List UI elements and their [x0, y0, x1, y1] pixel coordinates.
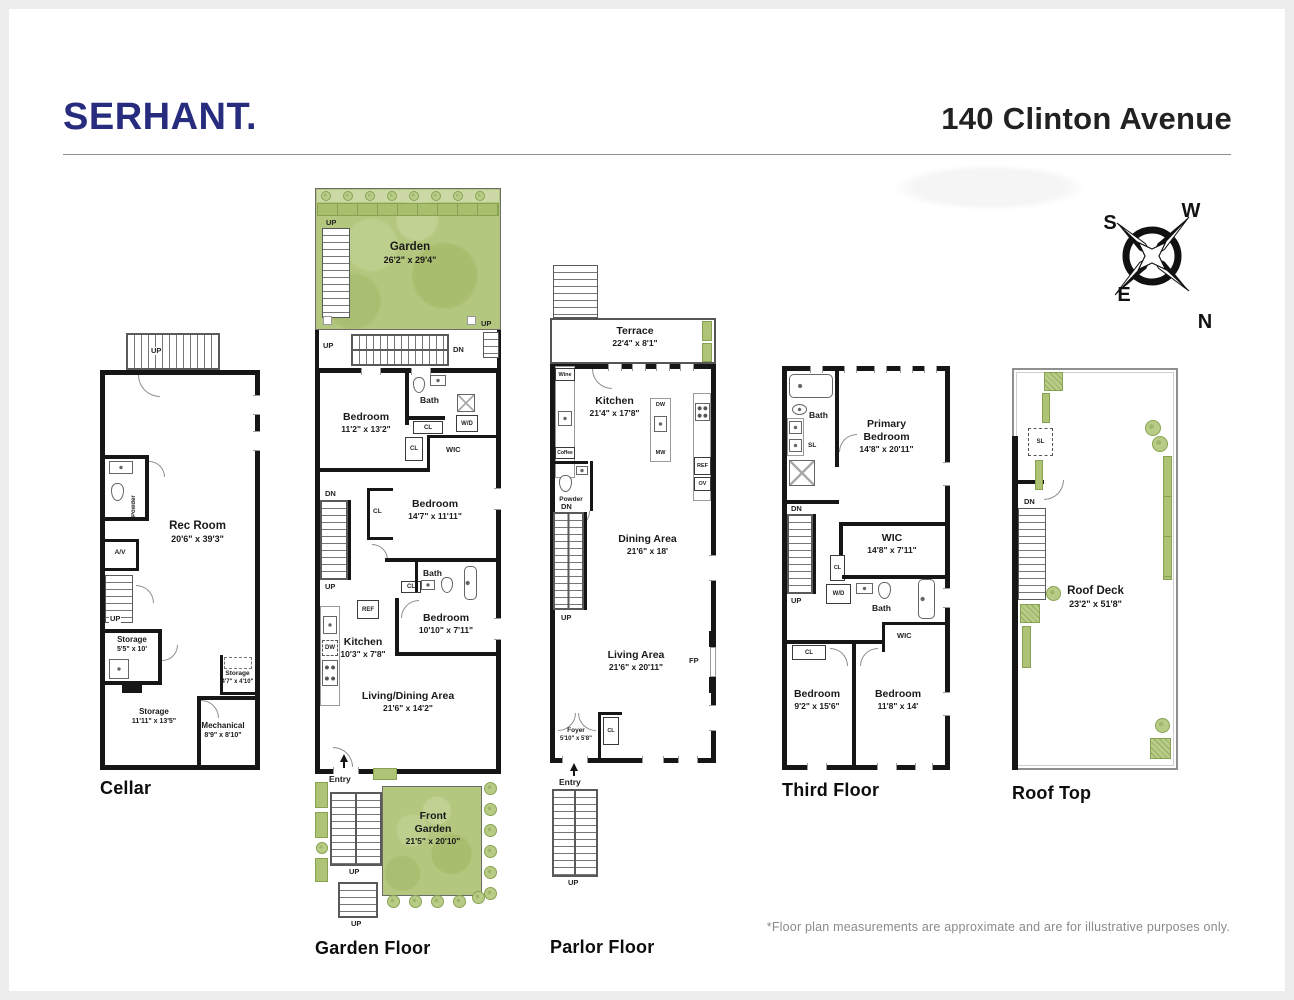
- compass-rose: S W E N: [1085, 183, 1220, 335]
- entry-label: Entry: [559, 777, 581, 787]
- wall: [555, 461, 588, 464]
- planter: [1020, 604, 1040, 623]
- room-label-bedroom1: Bedroom 9'2" x 15'6": [782, 688, 852, 713]
- wall: [105, 455, 149, 459]
- room-name: Bedroom: [343, 411, 389, 424]
- stairs: [126, 333, 220, 370]
- window: [709, 705, 716, 731]
- ov-label: OV: [699, 481, 707, 487]
- stairs-label: DN: [325, 490, 336, 498]
- planter: [315, 812, 328, 838]
- bush: [387, 191, 397, 201]
- room-label-primary-bedroom: Primary Bedroom 14'8" x 20'11": [844, 418, 929, 456]
- room-name: Garden: [390, 240, 430, 254]
- stairs: [553, 265, 598, 318]
- room-label-mechanical: Mechanical 8'9" x 8'10": [190, 721, 256, 740]
- stairs-label: DN: [791, 505, 802, 513]
- shower: [789, 460, 815, 486]
- closet: CL: [792, 645, 826, 660]
- room-name: WIC: [882, 532, 902, 545]
- wall: [598, 712, 622, 715]
- fireplace: [709, 677, 716, 693]
- window: [943, 462, 950, 486]
- bath-label: Bath: [420, 395, 439, 405]
- wall: [852, 644, 856, 765]
- planter: [1150, 738, 1171, 759]
- stairs-label: DN: [561, 503, 572, 511]
- stairs-label: UP: [150, 347, 162, 355]
- room-label-kitchen: Kitchen 10'3" x 7'8": [327, 636, 399, 661]
- room-name: Kitchen: [595, 395, 634, 408]
- sink: [323, 616, 337, 634]
- planter: [315, 858, 328, 882]
- stairs: [338, 882, 378, 918]
- bush: [409, 895, 422, 908]
- planter: [1163, 456, 1172, 580]
- ref-label: REF: [362, 607, 374, 613]
- wall: [367, 537, 393, 540]
- powder-label: Powder: [131, 463, 137, 517]
- room-dims: 14'7" x 11'11": [408, 511, 462, 522]
- closet-label: CL: [607, 728, 614, 734]
- room-dims: 21'6" x 14'2": [383, 703, 433, 714]
- stairs-label: UP: [109, 615, 121, 623]
- dw-label: DW: [650, 402, 671, 408]
- wall: [835, 371, 839, 467]
- bush: [1155, 718, 1170, 733]
- wall: [105, 629, 162, 633]
- room-label-wic: WIC 14'8" x 7'11": [852, 532, 932, 557]
- bath-label: Bath: [872, 603, 891, 613]
- window: [877, 763, 897, 770]
- stairs: [322, 228, 350, 318]
- room-dims: 11'2" x 13'2": [341, 424, 390, 435]
- floor-title-cellar: Cellar: [100, 778, 151, 799]
- room-name: Terrace: [616, 325, 653, 338]
- room-label-kitchen: Kitchen 21'4" x 17'8": [572, 395, 657, 420]
- floor-title-parlor: Parlor Floor: [550, 937, 654, 958]
- bath-label: Bath: [809, 410, 828, 420]
- room-label-rec-room: Rec Room 20'6" x 39'3": [140, 519, 255, 546]
- wall: [367, 488, 393, 491]
- bush: [316, 842, 328, 854]
- floorplan-parlor-floor: DN Terrace 22'4" x 8'1" Kitchen 21'4" x …: [550, 265, 716, 955]
- room-label-terrace: Terrace 22'4" x 8'1": [585, 325, 685, 350]
- sink: [576, 466, 588, 475]
- stairs: [483, 332, 499, 358]
- room-dims: 8'9" x 8'10": [204, 731, 241, 740]
- wall: [590, 461, 593, 511]
- window: [807, 763, 827, 770]
- skylight-label: SL: [808, 442, 816, 449]
- skylight: SL: [1028, 428, 1053, 456]
- window: [678, 756, 698, 763]
- closet: CL: [405, 437, 423, 461]
- wall: [136, 539, 139, 571]
- window: [709, 555, 716, 581]
- stairs: [330, 792, 382, 866]
- room-name: Front Garden: [403, 810, 463, 836]
- room-name: Storage: [225, 670, 249, 678]
- compass-star: [1139, 243, 1166, 270]
- coffee-station: Coffee: [555, 447, 575, 459]
- room-label-bedroom2: Bedroom 11'8" x 14': [858, 688, 938, 713]
- window: [494, 488, 501, 510]
- room-dims: 21'6" x 20'11": [609, 662, 663, 673]
- stairs-label: UP: [791, 597, 801, 605]
- bush: [484, 887, 497, 900]
- closet-label: CL: [834, 565, 841, 571]
- stairs: [553, 512, 584, 610]
- window: [810, 366, 823, 373]
- stairs-label: UP: [481, 320, 491, 328]
- stairs-label: UP: [561, 614, 571, 622]
- wall: [220, 692, 255, 695]
- planter: [1022, 626, 1031, 668]
- wall: [415, 562, 418, 592]
- stairs-label: UP: [349, 868, 359, 876]
- window: [361, 368, 381, 375]
- room-label-bedroom2: Bedroom 14'7" x 11'11": [393, 498, 477, 523]
- wd-label: W/D: [833, 591, 845, 597]
- entry-arrow-stem: [573, 770, 575, 776]
- sink: [421, 580, 435, 590]
- closet-label: CL: [805, 650, 813, 656]
- wall: [787, 640, 884, 644]
- planter: [1044, 372, 1063, 391]
- stairs-label: UP: [325, 583, 335, 591]
- entry-door-gap: [562, 756, 588, 763]
- washer-dryer: W/D: [826, 584, 851, 604]
- room-label-storage2: Storage 4'7" x 4'10": [219, 670, 256, 686]
- stairs-label: UP: [351, 920, 361, 928]
- wic-label: WIC: [897, 632, 912, 640]
- window: [494, 618, 501, 640]
- compass-letter-n: N: [1198, 311, 1212, 333]
- page-title: 140 Clinton Avenue: [941, 101, 1232, 137]
- window: [844, 366, 857, 373]
- floor-title-third: Third Floor: [782, 780, 879, 801]
- watermark-smudge: [895, 165, 1085, 210]
- oven: OV: [694, 477, 711, 491]
- wall: [427, 438, 430, 472]
- stairs: [351, 334, 449, 366]
- window: [900, 366, 913, 373]
- stairs-label: DN: [453, 346, 464, 354]
- room-name: Storage: [117, 635, 147, 645]
- bush: [1152, 436, 1168, 452]
- post: [323, 316, 332, 325]
- bush: [484, 803, 497, 816]
- wall: [882, 622, 885, 652]
- stairs: [320, 500, 348, 580]
- wall: [367, 488, 370, 540]
- bathtub: [789, 374, 833, 398]
- bush: [484, 782, 497, 795]
- bush: [431, 191, 441, 201]
- wic-label: WIC: [446, 446, 461, 454]
- closet-label: CL: [373, 508, 382, 515]
- wall: [385, 558, 496, 562]
- stairs-label: DN: [1024, 498, 1035, 506]
- wall: [320, 468, 428, 472]
- wine-fridge: Wine: [555, 368, 575, 381]
- wall: [348, 500, 351, 580]
- room-dims: 21'5" x 20'10": [406, 836, 461, 847]
- room-dims: 5'10" x 5'8": [560, 735, 592, 743]
- room-label-living: Living Area 21'6" x 20'11": [592, 649, 680, 674]
- room-dims: 4'7" x 4'10": [222, 678, 254, 686]
- post: [467, 316, 476, 325]
- wall: [105, 539, 139, 542]
- room-name: Bedroom: [875, 688, 921, 701]
- bathtub: [918, 579, 935, 619]
- room-dims: 22'4" x 8'1": [612, 338, 657, 349]
- room-label-front-garden: Front Garden 21'5" x 20'10": [398, 810, 468, 848]
- wall: [122, 685, 142, 693]
- window: [680, 364, 694, 371]
- room-name: Mechanical: [201, 721, 244, 731]
- brand-logo: SERHANT.: [63, 96, 257, 139]
- header-divider: [63, 154, 1231, 155]
- room-dims: 26'2" x 29'4": [384, 254, 437, 266]
- ref-label: REF: [697, 463, 708, 469]
- window: [874, 366, 887, 373]
- window: [924, 366, 937, 373]
- window: [642, 756, 664, 763]
- room-label-foyer: Foyer 5'10" x 5'8": [554, 727, 598, 743]
- room-name: Storage: [139, 707, 169, 717]
- room-dims: 23'2" x 51'8": [1069, 598, 1122, 610]
- entry-door-gap: [333, 767, 359, 774]
- sink: [792, 404, 807, 415]
- floorplan-garden-floor: UP Garden 26'2" x 29'4" UP DN UP Bedroom…: [315, 188, 501, 978]
- sink: [109, 659, 129, 679]
- wall: [813, 514, 816, 594]
- planter: [1035, 460, 1043, 490]
- room-dims: 5'5" x 10': [117, 645, 147, 654]
- planter: [373, 768, 397, 780]
- hedge-row: [317, 203, 499, 216]
- sink: [558, 411, 572, 426]
- washer-dryer: W/D: [456, 415, 478, 432]
- compass-letter-w: W: [1182, 200, 1201, 222]
- mw-label: MW: [650, 450, 671, 456]
- stairs: [1018, 508, 1046, 600]
- closet: CL: [413, 421, 443, 434]
- bush: [1145, 420, 1161, 436]
- window: [253, 431, 260, 451]
- room-dims: 9'2" x 15'6": [794, 701, 839, 712]
- bath-label: Bath: [423, 568, 442, 578]
- room-label-dining: Dining Area 21'6" x 18': [605, 533, 690, 558]
- room-name: Bedroom: [794, 688, 840, 701]
- closet: CL: [603, 717, 619, 745]
- planter: [315, 782, 328, 808]
- closet-doors: [224, 657, 252, 669]
- wall: [584, 512, 587, 610]
- sink: [654, 416, 667, 432]
- coffee-label: Coffee: [557, 450, 573, 456]
- room-name: Foyer: [567, 727, 585, 735]
- wall: [409, 416, 445, 420]
- refrigerator: REF: [694, 457, 711, 475]
- room-name: Roof Deck: [1067, 584, 1124, 598]
- room-name: Bedroom: [412, 498, 458, 511]
- room-dims: 14'8" x 20'11": [859, 444, 913, 455]
- sink: [109, 461, 133, 474]
- room-name: Primary Bedroom: [855, 418, 919, 444]
- bush: [431, 895, 444, 908]
- floorplan-third-floor: Bath SL Primary Bedroom 14'8" x 20'11" D…: [782, 362, 950, 787]
- sink: [789, 439, 802, 452]
- room-label-garden: Garden 26'2" x 29'4": [355, 240, 465, 267]
- stairs: [552, 789, 598, 877]
- wall: [839, 522, 945, 526]
- bush: [453, 895, 466, 908]
- bush: [484, 866, 497, 879]
- room-label-storage1: Storage 5'5" x 10': [106, 635, 158, 654]
- window: [915, 763, 933, 770]
- wall: [882, 622, 945, 625]
- refrigerator: REF: [357, 600, 379, 619]
- room-dims: 11'8" x 14': [878, 701, 919, 712]
- wd-label: W/D: [461, 421, 473, 427]
- planter: [702, 343, 712, 362]
- bush: [475, 191, 485, 201]
- room-dims: 10'10" x 7'11": [419, 625, 473, 636]
- entry-arrow-stem: [343, 761, 345, 768]
- closet-label: CL: [410, 446, 418, 452]
- stairs-label: UP: [568, 879, 578, 887]
- bush: [343, 191, 353, 201]
- stove: [322, 660, 338, 686]
- bush: [409, 191, 419, 201]
- wall: [197, 696, 255, 700]
- wall: [427, 435, 496, 438]
- window: [943, 692, 950, 716]
- window: [632, 364, 646, 371]
- room-label-roof-deck: Roof Deck 23'2" x 51'8": [1048, 584, 1143, 611]
- window: [943, 588, 950, 608]
- compass-letter-e: E: [1117, 284, 1130, 306]
- room-label-bedroom3: Bedroom 10'10" x 7'11": [399, 612, 493, 637]
- stairs-label: UP: [323, 342, 333, 350]
- bush: [453, 191, 463, 201]
- wall: [598, 712, 601, 759]
- room-dims: 11'11" x 13'5": [132, 717, 176, 726]
- wine-label: Wine: [558, 372, 571, 378]
- fireplace-label: FP: [689, 657, 699, 665]
- window: [253, 395, 260, 415]
- window: [411, 368, 431, 375]
- disclaimer-text: *Floor plan measurements are approximate…: [767, 920, 1230, 934]
- room-dims: 20'6" x 39'3": [171, 533, 224, 545]
- floorplan-roof-top: DN SL Roof Deck 23'2" x 51'8" Roof Top: [1012, 368, 1178, 788]
- sink: [856, 583, 873, 594]
- fireplace: [709, 631, 716, 647]
- entry-label: Entry: [329, 774, 351, 784]
- floor-title-garden: Garden Floor: [315, 938, 430, 959]
- shower: [457, 394, 475, 412]
- wall: [1012, 436, 1018, 770]
- room-dims: 14'8" x 7'11": [867, 545, 916, 556]
- bush: [321, 191, 331, 201]
- floor-title-roof: Roof Top: [1012, 783, 1091, 804]
- bush: [387, 895, 400, 908]
- bush: [484, 845, 497, 858]
- sink: [430, 375, 446, 386]
- room-name: Living/Dining Area: [362, 690, 454, 703]
- planter: [702, 321, 712, 341]
- wall: [105, 568, 139, 571]
- floorplan-page: SERHANT. 140 Clinton Avenue S W E N UP P…: [0, 0, 1294, 1000]
- room-dims: 10'3" x 7'8": [340, 649, 385, 660]
- closet-label: CL: [407, 584, 415, 590]
- bush: [472, 891, 485, 904]
- wall: [395, 652, 496, 656]
- wall: [315, 330, 319, 368]
- room-name: Rec Room: [169, 519, 226, 533]
- room-label-bedroom1: Bedroom 11'2" x 13'2": [325, 411, 407, 436]
- bush: [365, 191, 375, 201]
- closet-label: CL: [424, 425, 432, 431]
- av-label: A/V: [106, 549, 134, 556]
- stairs: [787, 514, 813, 594]
- room-label-living-dining: Living/Dining Area 21'6" x 14'2": [353, 690, 463, 715]
- planter: [1042, 393, 1050, 423]
- room-dims: 21'4" x 17'8": [590, 408, 640, 419]
- window: [656, 364, 670, 371]
- bush: [484, 824, 497, 837]
- compass-letter-s: S: [1103, 212, 1116, 234]
- bathtub: [464, 566, 477, 600]
- room-name: Living Area: [608, 649, 665, 662]
- stove: [695, 403, 710, 421]
- sink: [789, 421, 802, 434]
- room-name: Kitchen: [344, 636, 383, 649]
- skylight-label: SL: [1037, 439, 1045, 445]
- room-dims: 21'6" x 18': [627, 546, 668, 557]
- closet: CL: [401, 581, 421, 593]
- room-name: Dining Area: [618, 533, 677, 546]
- room-name: Bedroom: [423, 612, 469, 625]
- fireplace-recess: [710, 647, 716, 677]
- floorplan-cellar: UP Powder A/V UP Storage 5'5" x 10': [100, 333, 260, 803]
- stairs-label: UP: [326, 219, 336, 227]
- room-label-storage3: Storage 11'11" x 13'5": [108, 707, 200, 726]
